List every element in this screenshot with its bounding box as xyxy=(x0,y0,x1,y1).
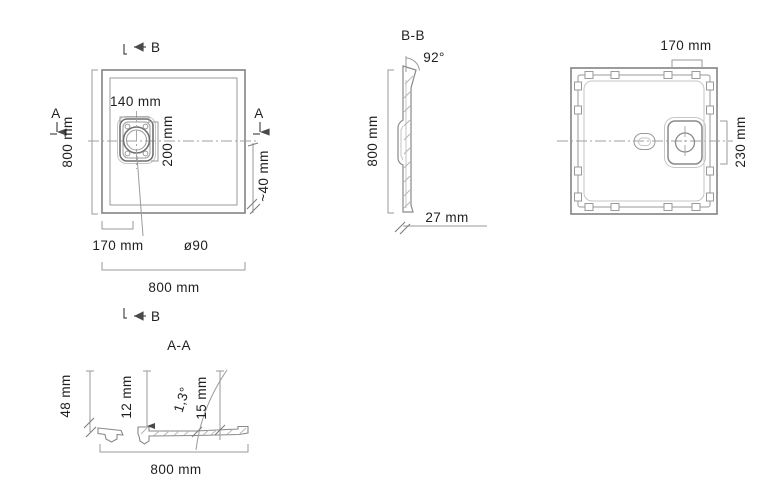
section-a-marker-right: A xyxy=(253,106,264,134)
dim-slash xyxy=(84,418,94,428)
section-b-marker-bottom: B xyxy=(124,308,160,324)
dim-48: 48 mm xyxy=(58,371,96,437)
dim-label: 170 mm xyxy=(92,238,143,253)
section-cut-corner xyxy=(124,44,127,54)
section-b-marker-top: B xyxy=(124,40,160,55)
drain-screw-br xyxy=(143,151,148,156)
aa-left-rim-piece xyxy=(98,428,123,442)
dim-label: 92° xyxy=(423,50,445,65)
drain-screw-tl xyxy=(125,124,130,129)
dim-label: 170 mm xyxy=(660,38,711,53)
technical-drawing-page: B A A 140 mm 200 mm ~40 mm xyxy=(0,0,784,484)
top-view: B A A 140 mm 200 mm ~40 mm xyxy=(50,40,271,295)
dim-label: 800 mm xyxy=(150,462,201,477)
dim-label: 27 mm xyxy=(425,210,468,225)
view-title: B-B xyxy=(401,28,425,43)
section-cut-corner xyxy=(124,308,127,318)
dim-label: ø90 xyxy=(184,238,208,253)
dim-12: 12 mm xyxy=(119,371,151,426)
dim-170-bottom-view: 170 mm xyxy=(660,38,711,67)
dim-bracket xyxy=(672,60,702,67)
drain-screw-tr xyxy=(143,124,148,129)
dim-label: 800 mm xyxy=(148,280,199,295)
dim-slash xyxy=(250,204,260,214)
dim-label: 230 mm xyxy=(733,116,748,167)
dim-27: 27 mm xyxy=(395,210,487,234)
dim-800-bottom: 800 mm xyxy=(102,262,245,295)
plug-outer xyxy=(634,134,655,150)
dim-170: 170 mm xyxy=(92,221,143,253)
section-b-label: B xyxy=(151,309,160,324)
drain-screw-bl xyxy=(125,151,130,156)
dim-bracket xyxy=(388,70,394,213)
housing-outline xyxy=(665,118,706,168)
section-aa-view: B A-A 48 mm xyxy=(58,308,248,477)
dim-slash xyxy=(86,427,96,437)
dim-label: 800 mm xyxy=(365,115,380,166)
drain-housing xyxy=(665,118,706,168)
bb-profile xyxy=(398,66,416,212)
leader-line xyxy=(137,156,143,236)
view-title: A-A xyxy=(167,338,191,353)
dim-bracket xyxy=(92,70,98,214)
dim-label: 48 mm xyxy=(58,374,73,417)
bb-hatching xyxy=(404,76,413,208)
dim-label: 1,3° xyxy=(171,385,193,414)
dim-bracket xyxy=(102,262,245,270)
dim-40: ~40 mm xyxy=(247,143,271,214)
dim-label: 800 mm xyxy=(60,116,75,167)
dim-800-aa: 800 mm xyxy=(100,444,248,477)
dim-230: 230 mm xyxy=(720,116,748,167)
dim-bracket xyxy=(151,122,158,161)
bb-drain-bulge xyxy=(401,126,403,160)
bottom-view: 170 mm 230 mm xyxy=(557,38,748,214)
section-b-label: B xyxy=(151,40,160,55)
dim-label: ~40 mm xyxy=(256,150,271,202)
dim-bracket xyxy=(100,444,248,452)
section-bb-view: B-B 92° xyxy=(365,28,487,234)
plug-inner xyxy=(639,138,651,146)
dim-bracket xyxy=(102,221,133,229)
center-plug xyxy=(634,134,655,150)
aa-profile xyxy=(98,427,248,445)
dim-label: 200 mm xyxy=(160,115,175,166)
dim-label: 140 mm xyxy=(110,94,161,109)
dim-800-bb: 800 mm xyxy=(365,70,394,213)
drain-top-view xyxy=(118,111,156,169)
section-a-label: A xyxy=(254,106,263,121)
dim-label: 12 mm xyxy=(119,375,134,418)
dim-bracket xyxy=(720,121,727,164)
dim-800-left: 800 mm xyxy=(60,70,98,214)
drawing-canvas: B A A 140 mm 200 mm ~40 mm xyxy=(0,0,784,484)
dim-label: 15 mm xyxy=(194,376,209,419)
